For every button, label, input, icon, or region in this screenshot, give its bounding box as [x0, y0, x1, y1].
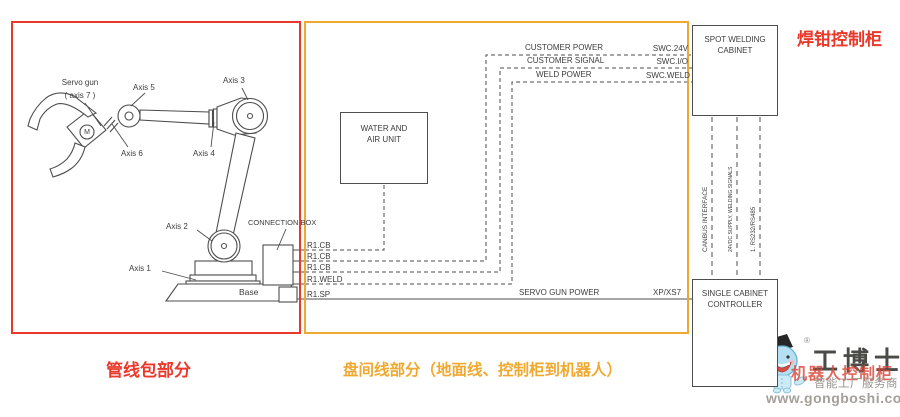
swc-io-label: SWC.I/O: [640, 57, 688, 66]
axis6-label: Axis 6: [121, 149, 143, 158]
axis5-label: Axis 5: [133, 83, 155, 92]
customer-power-label: CUSTOMER POWER: [525, 43, 603, 52]
connection-box-label: CONNECTION BOX: [248, 218, 316, 227]
route-r1cb1: [305, 173, 384, 250]
servo-gun-power-label: SERVO GUN POWER: [519, 288, 599, 297]
wire-r1cb3-label: R1.CB: [307, 263, 331, 272]
weld-power-label: WELD POWER: [536, 70, 592, 79]
servo-gun-label-line2: ( axis 7 ): [54, 91, 106, 100]
robot-arm-drawing: [28, 93, 297, 302]
connection-box-shape: [263, 245, 293, 285]
axis1-label: Axis 1: [129, 264, 151, 273]
water-air-unit-label-line1: WATER AND: [341, 123, 427, 134]
wire-r1sp-label: R1.SP: [307, 290, 330, 299]
watermark-registered-mark: ®: [804, 336, 810, 345]
spot-welding-label-line2: CABINET: [693, 45, 777, 56]
servo-gun-label-line1: Servo gun: [54, 78, 106, 87]
controller-label-line1: SINGLE CABINET: [693, 288, 777, 299]
swc-24v-label: SWC.24V: [640, 44, 688, 53]
dress-pack-region-label: 管线包部分: [106, 356, 191, 381]
xp-xs7-label: XP/XS7: [653, 288, 681, 297]
swc-weld-label: SWC.WELD: [637, 71, 690, 80]
base-label: Base: [239, 288, 258, 297]
motor-m-label: M: [82, 128, 92, 137]
weld-cabinet-region-label: 焊钳控制柜: [797, 25, 882, 50]
rs232-label: 1. RS232/RS485: [751, 207, 757, 252]
wire-r1weld-label: R1.WELD: [307, 275, 343, 284]
spot-welding-cabinet-box: SPOT WELDING CABINET: [692, 25, 778, 116]
axis3-label: Axis 3: [223, 76, 245, 85]
wiring-diagram-canvas: WATER AND AIR UNIT SPOT WELDING CABINET …: [0, 0, 900, 417]
axis2-label: Axis 2: [166, 222, 188, 231]
watermark-tagline: 智能工厂服务商: [814, 375, 898, 391]
wire-r1cb1-label: R1.CB: [307, 241, 331, 250]
controller-label-line2: CONTROLLER: [693, 299, 777, 310]
single-cabinet-controller-box: SINGLE CABINET CONTROLLER: [692, 279, 778, 387]
canbus-interface-label: CANBUS INTERFACE: [702, 187, 709, 252]
interconnect-region-label: 盘间线部分（地面线、控制柜到机器人）: [343, 358, 622, 380]
watermark-url: www.gongboshi.com: [766, 390, 900, 406]
water-air-unit-label-line2: AIR UNIT: [341, 134, 427, 145]
spot-welding-label-line1: SPOT WELDING: [693, 34, 777, 45]
water-air-unit-box: WATER AND AIR UNIT: [340, 112, 428, 184]
customer-signal-label: CUSTOMER SIGNAL: [527, 56, 604, 65]
wire-r1cb2-label: R1.CB: [307, 252, 331, 261]
supply-weld-signals-label: 24VDC SUPPLY, WELDING SIGNALS: [728, 167, 734, 252]
base-outlet-shape: [279, 287, 297, 302]
axis4-label: Axis 4: [193, 149, 215, 158]
